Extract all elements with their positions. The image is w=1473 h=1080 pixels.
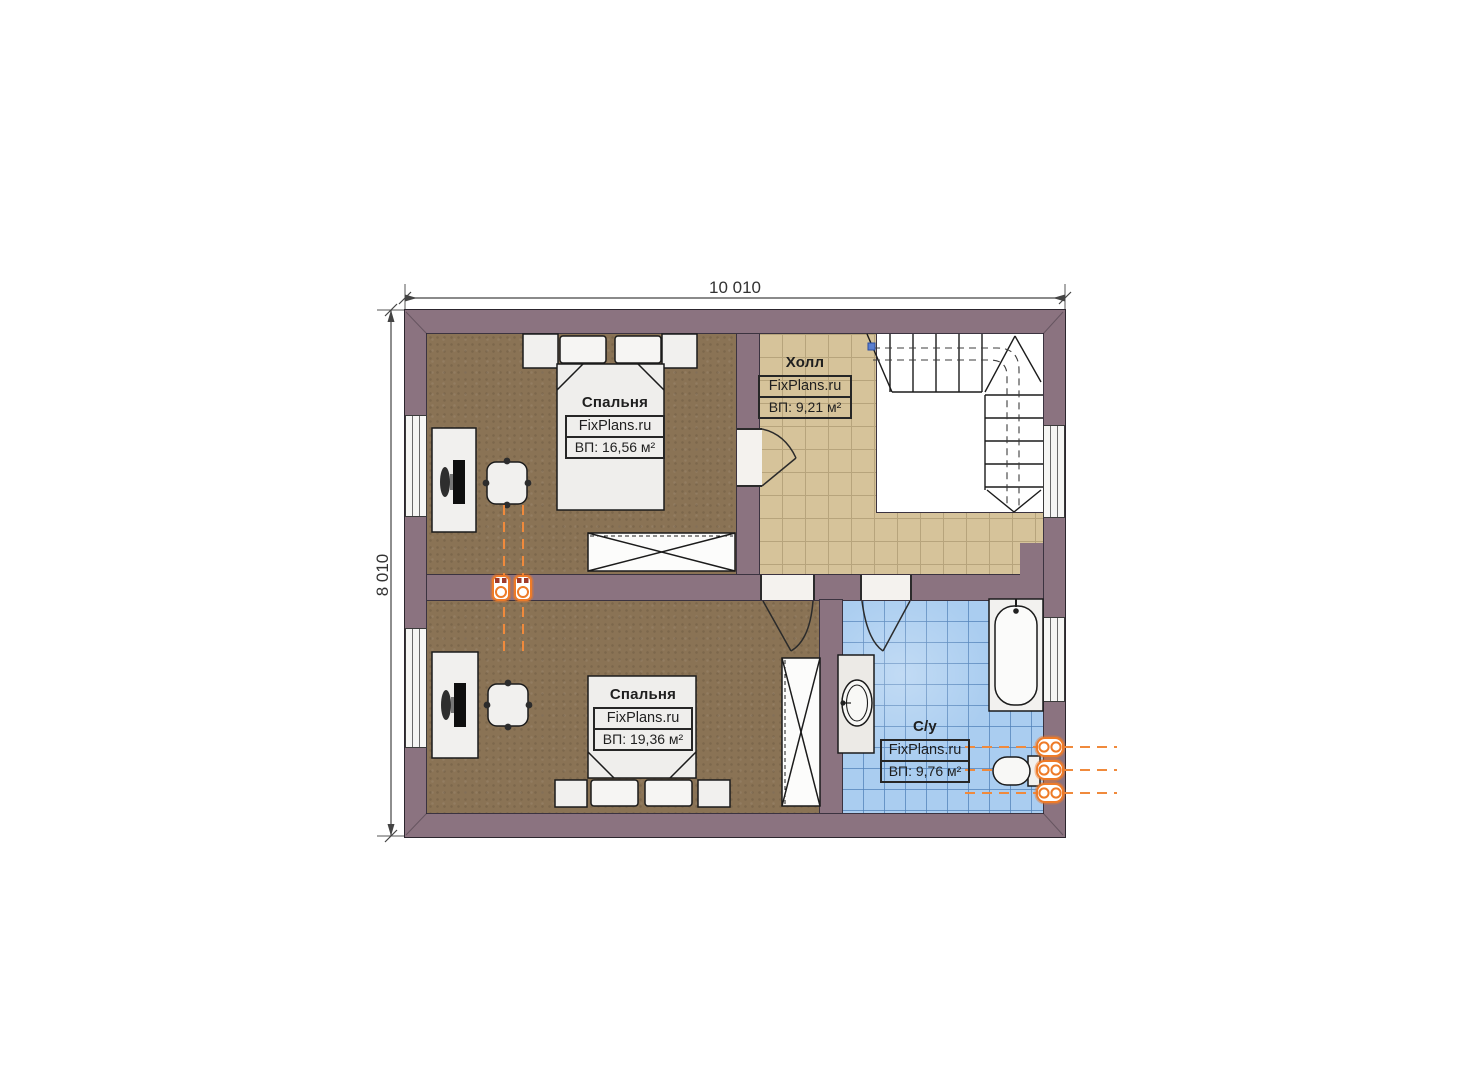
brand-watermark: FixPlans.ru	[760, 377, 850, 396]
room-area: ВП: 19,36 м²	[595, 728, 691, 749]
dimension-width-label: 10 010	[690, 278, 780, 298]
room-name: С/у	[880, 718, 970, 736]
room-info-box: FixPlans.ru ВП: 9,21 м²	[758, 375, 852, 419]
window-bedroom1-left	[405, 415, 427, 517]
room-area: ВП: 9,21 м²	[760, 396, 850, 417]
room-label-hall: Холл FixPlans.ru ВП: 9,21 м²	[758, 354, 852, 419]
window-bedroom2-left	[405, 628, 427, 748]
window-stairs-right	[1043, 425, 1065, 518]
room-name: Спальня	[593, 686, 693, 704]
room-area: ВП: 16,56 м²	[567, 436, 663, 457]
floor-plan-page: 10 010 8 010	[0, 0, 1473, 1080]
door-opening-bedroom2	[760, 575, 815, 600]
room-info-box: FixPlans.ru ВП: 19,36 м²	[593, 707, 693, 751]
floor-plan: Спальня FixPlans.ru ВП: 16,56 м² Холл Fi…	[405, 310, 1065, 837]
wall-middle	[427, 575, 1043, 600]
room-area: ВП: 9,76 м²	[882, 760, 968, 781]
room-label-bathroom: С/у FixPlans.ru ВП: 9,76 м²	[880, 718, 970, 783]
door-opening-bathroom	[860, 575, 912, 600]
brand-watermark: FixPlans.ru	[882, 741, 968, 760]
room-name: Спальня	[565, 394, 665, 412]
room-info-box: FixPlans.ru ВП: 16,56 м²	[565, 415, 665, 459]
brand-watermark: FixPlans.ru	[567, 417, 663, 436]
room-label-bedroom1: Спальня FixPlans.ru ВП: 16,56 м²	[565, 394, 665, 459]
room-name: Холл	[758, 354, 852, 372]
door-opening-bedroom1	[737, 428, 762, 487]
brand-watermark: FixPlans.ru	[595, 709, 691, 728]
wall-bedroom2-bathroom	[820, 600, 842, 813]
window-bathroom-right	[1043, 617, 1065, 702]
wall-pier	[1020, 543, 1043, 577]
stairwell	[877, 334, 1043, 512]
dimension-height-label: 8 010	[373, 530, 393, 620]
room-label-bedroom2: Спальня FixPlans.ru ВП: 19,36 м²	[593, 686, 693, 751]
room-info-box: FixPlans.ru ВП: 9,76 м²	[880, 739, 970, 783]
